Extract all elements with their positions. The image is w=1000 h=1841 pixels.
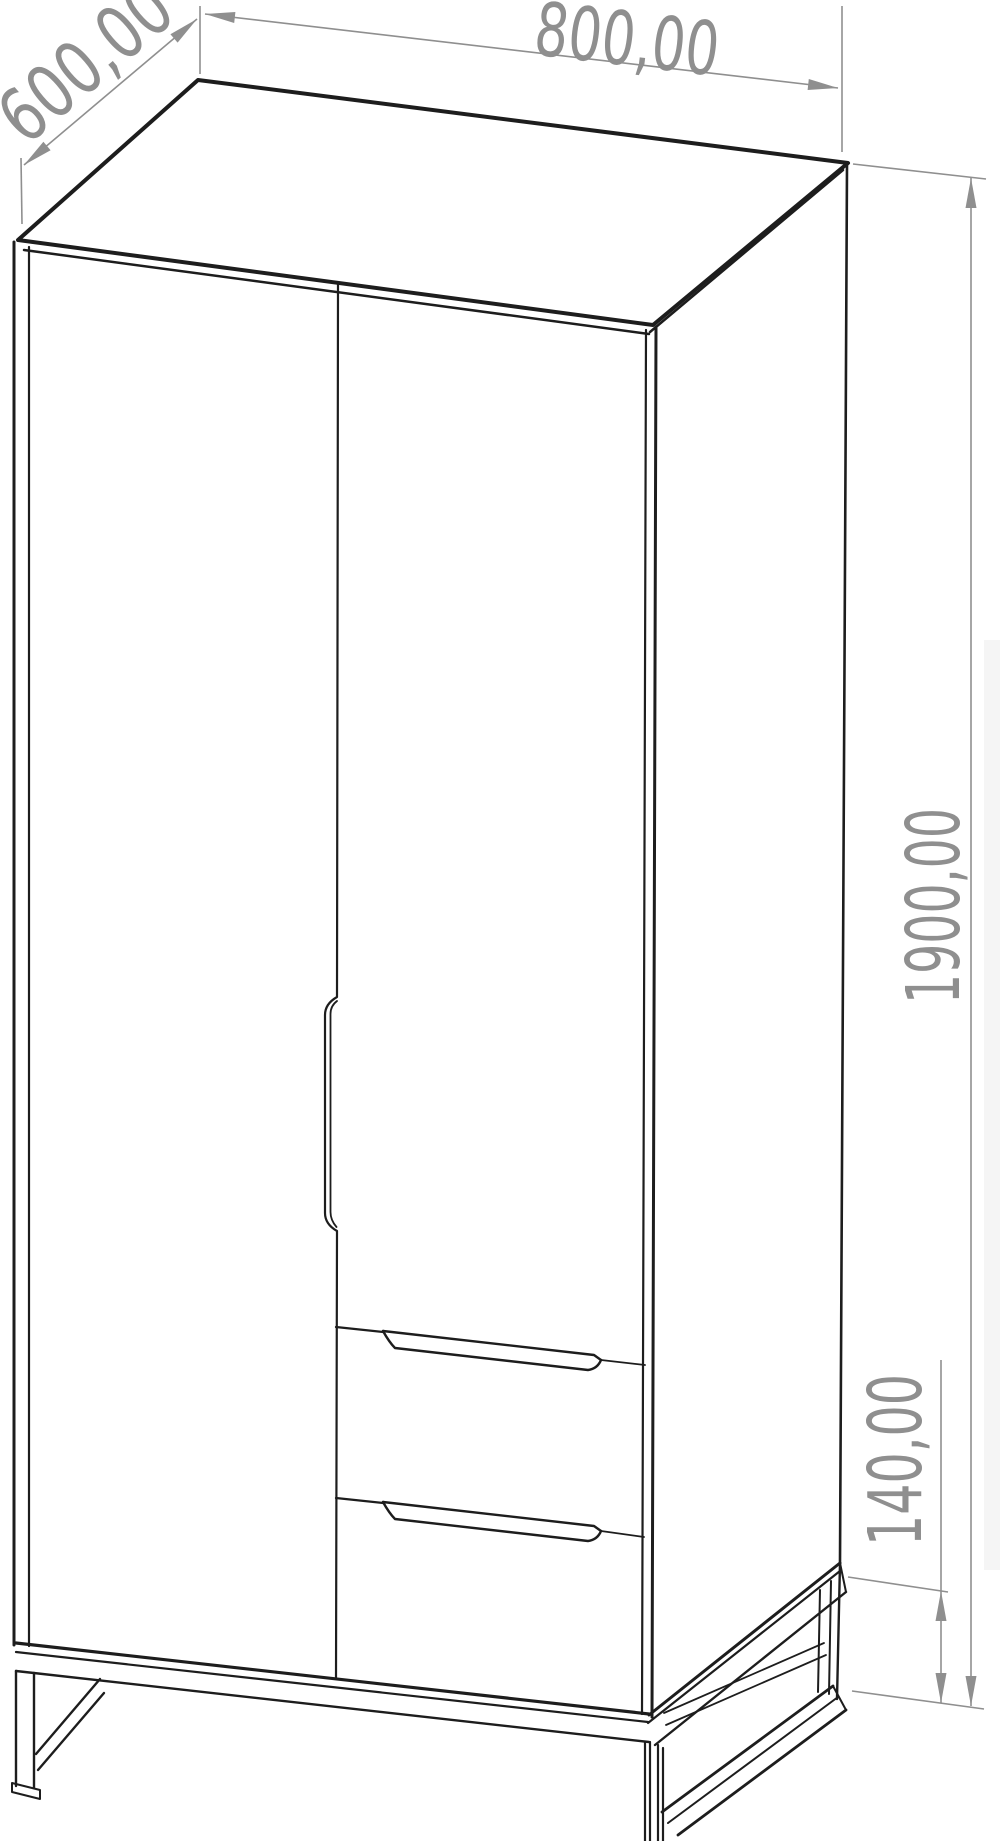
wardrobe-front-face <box>14 242 840 1723</box>
drawer-1-groove-top <box>383 1331 601 1360</box>
wardrobe-top-face <box>18 80 848 334</box>
base-leg-back-right <box>818 1563 840 1699</box>
arrow-width-start <box>205 12 235 23</box>
dimension-depth-label: 600,00 <box>0 0 190 160</box>
dimension-width: 800,00 <box>205 0 838 93</box>
dimension-width-line <box>205 14 838 88</box>
base-leg-front-right <box>645 1742 663 1841</box>
arrow-base-bottom <box>936 1673 947 1703</box>
door-gap-line <box>325 284 338 1678</box>
base-runner-left <box>36 1679 104 1770</box>
technical-drawing-canvas: 600,00 800,00 1900,00 140,00 <box>0 0 1000 1841</box>
arrow-height-top <box>966 178 977 208</box>
drawer-2-groove-bottom <box>383 1502 601 1541</box>
base-leg-front-left <box>12 1671 40 1799</box>
door-handle-inner-line <box>331 1001 338 1227</box>
scan-artifact-strip <box>984 640 1000 1570</box>
drawer-2-groove-top <box>383 1502 601 1531</box>
dimension-height-label: 1900,00 <box>891 808 977 1004</box>
side-panel-back-edge <box>840 165 847 1562</box>
drawer-1 <box>336 1327 645 1370</box>
drawer-2 <box>336 1498 644 1541</box>
base-runner-right <box>662 1686 846 1835</box>
base-frame <box>12 1563 846 1841</box>
drawer-1-groove-bottom <box>383 1331 601 1370</box>
wardrobe-drawing: 600,00 800,00 1900,00 140,00 <box>0 0 1000 1841</box>
dimension-width-label: 800,00 <box>530 0 724 93</box>
dimension-base-height-label: 140,00 <box>853 1374 939 1546</box>
door-handle-groove <box>325 284 338 1678</box>
dimension-depth: 600,00 <box>0 0 197 165</box>
arrow-width-end <box>808 79 838 90</box>
arrow-height-bottom <box>966 1676 977 1706</box>
arrow-base-top <box>936 1591 947 1621</box>
dimension-base-height: 140,00 <box>853 1360 947 1703</box>
